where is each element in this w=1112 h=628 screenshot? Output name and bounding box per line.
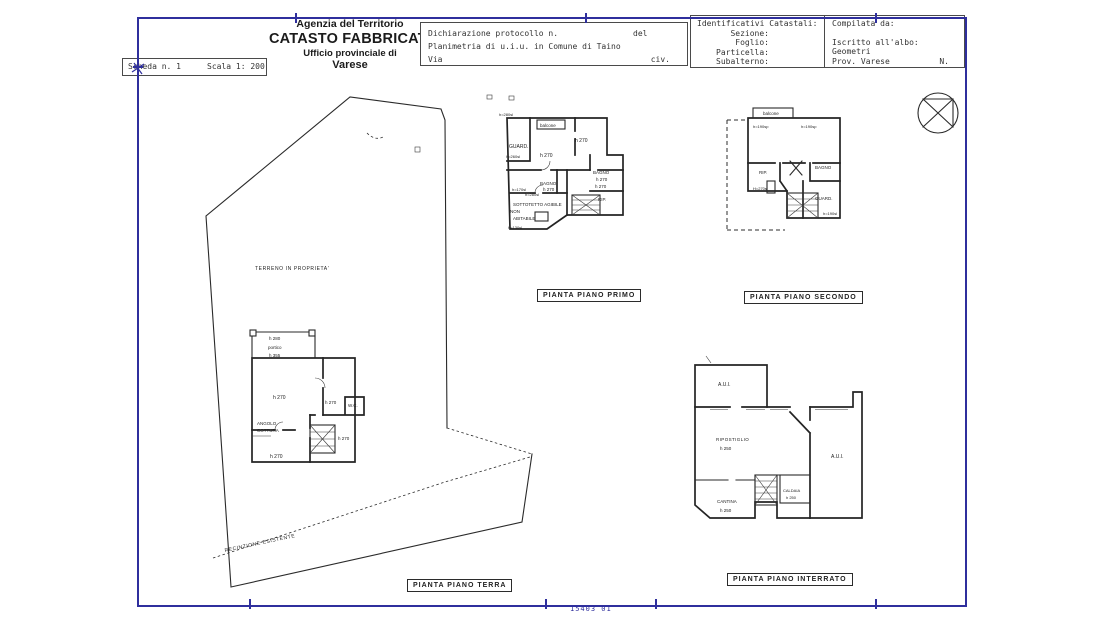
frame-tick-top-3: [875, 13, 877, 23]
sheet-frame: [137, 17, 967, 607]
frame-tick-top-1: [295, 13, 297, 23]
frame-tick-top-2: [585, 13, 587, 23]
registration-mark: [128, 56, 150, 80]
frame-tick-bottom-3: [655, 599, 657, 609]
footer-code: 15403 01: [570, 605, 612, 613]
frame-tick-bottom-2: [545, 599, 547, 609]
frame-tick-bottom-1: [249, 599, 251, 609]
cadastral-plan-sheet: { "page": { "scheda": "Scheda n. 1", "sc…: [0, 0, 1112, 628]
frame-tick-bottom-4: [875, 599, 877, 609]
